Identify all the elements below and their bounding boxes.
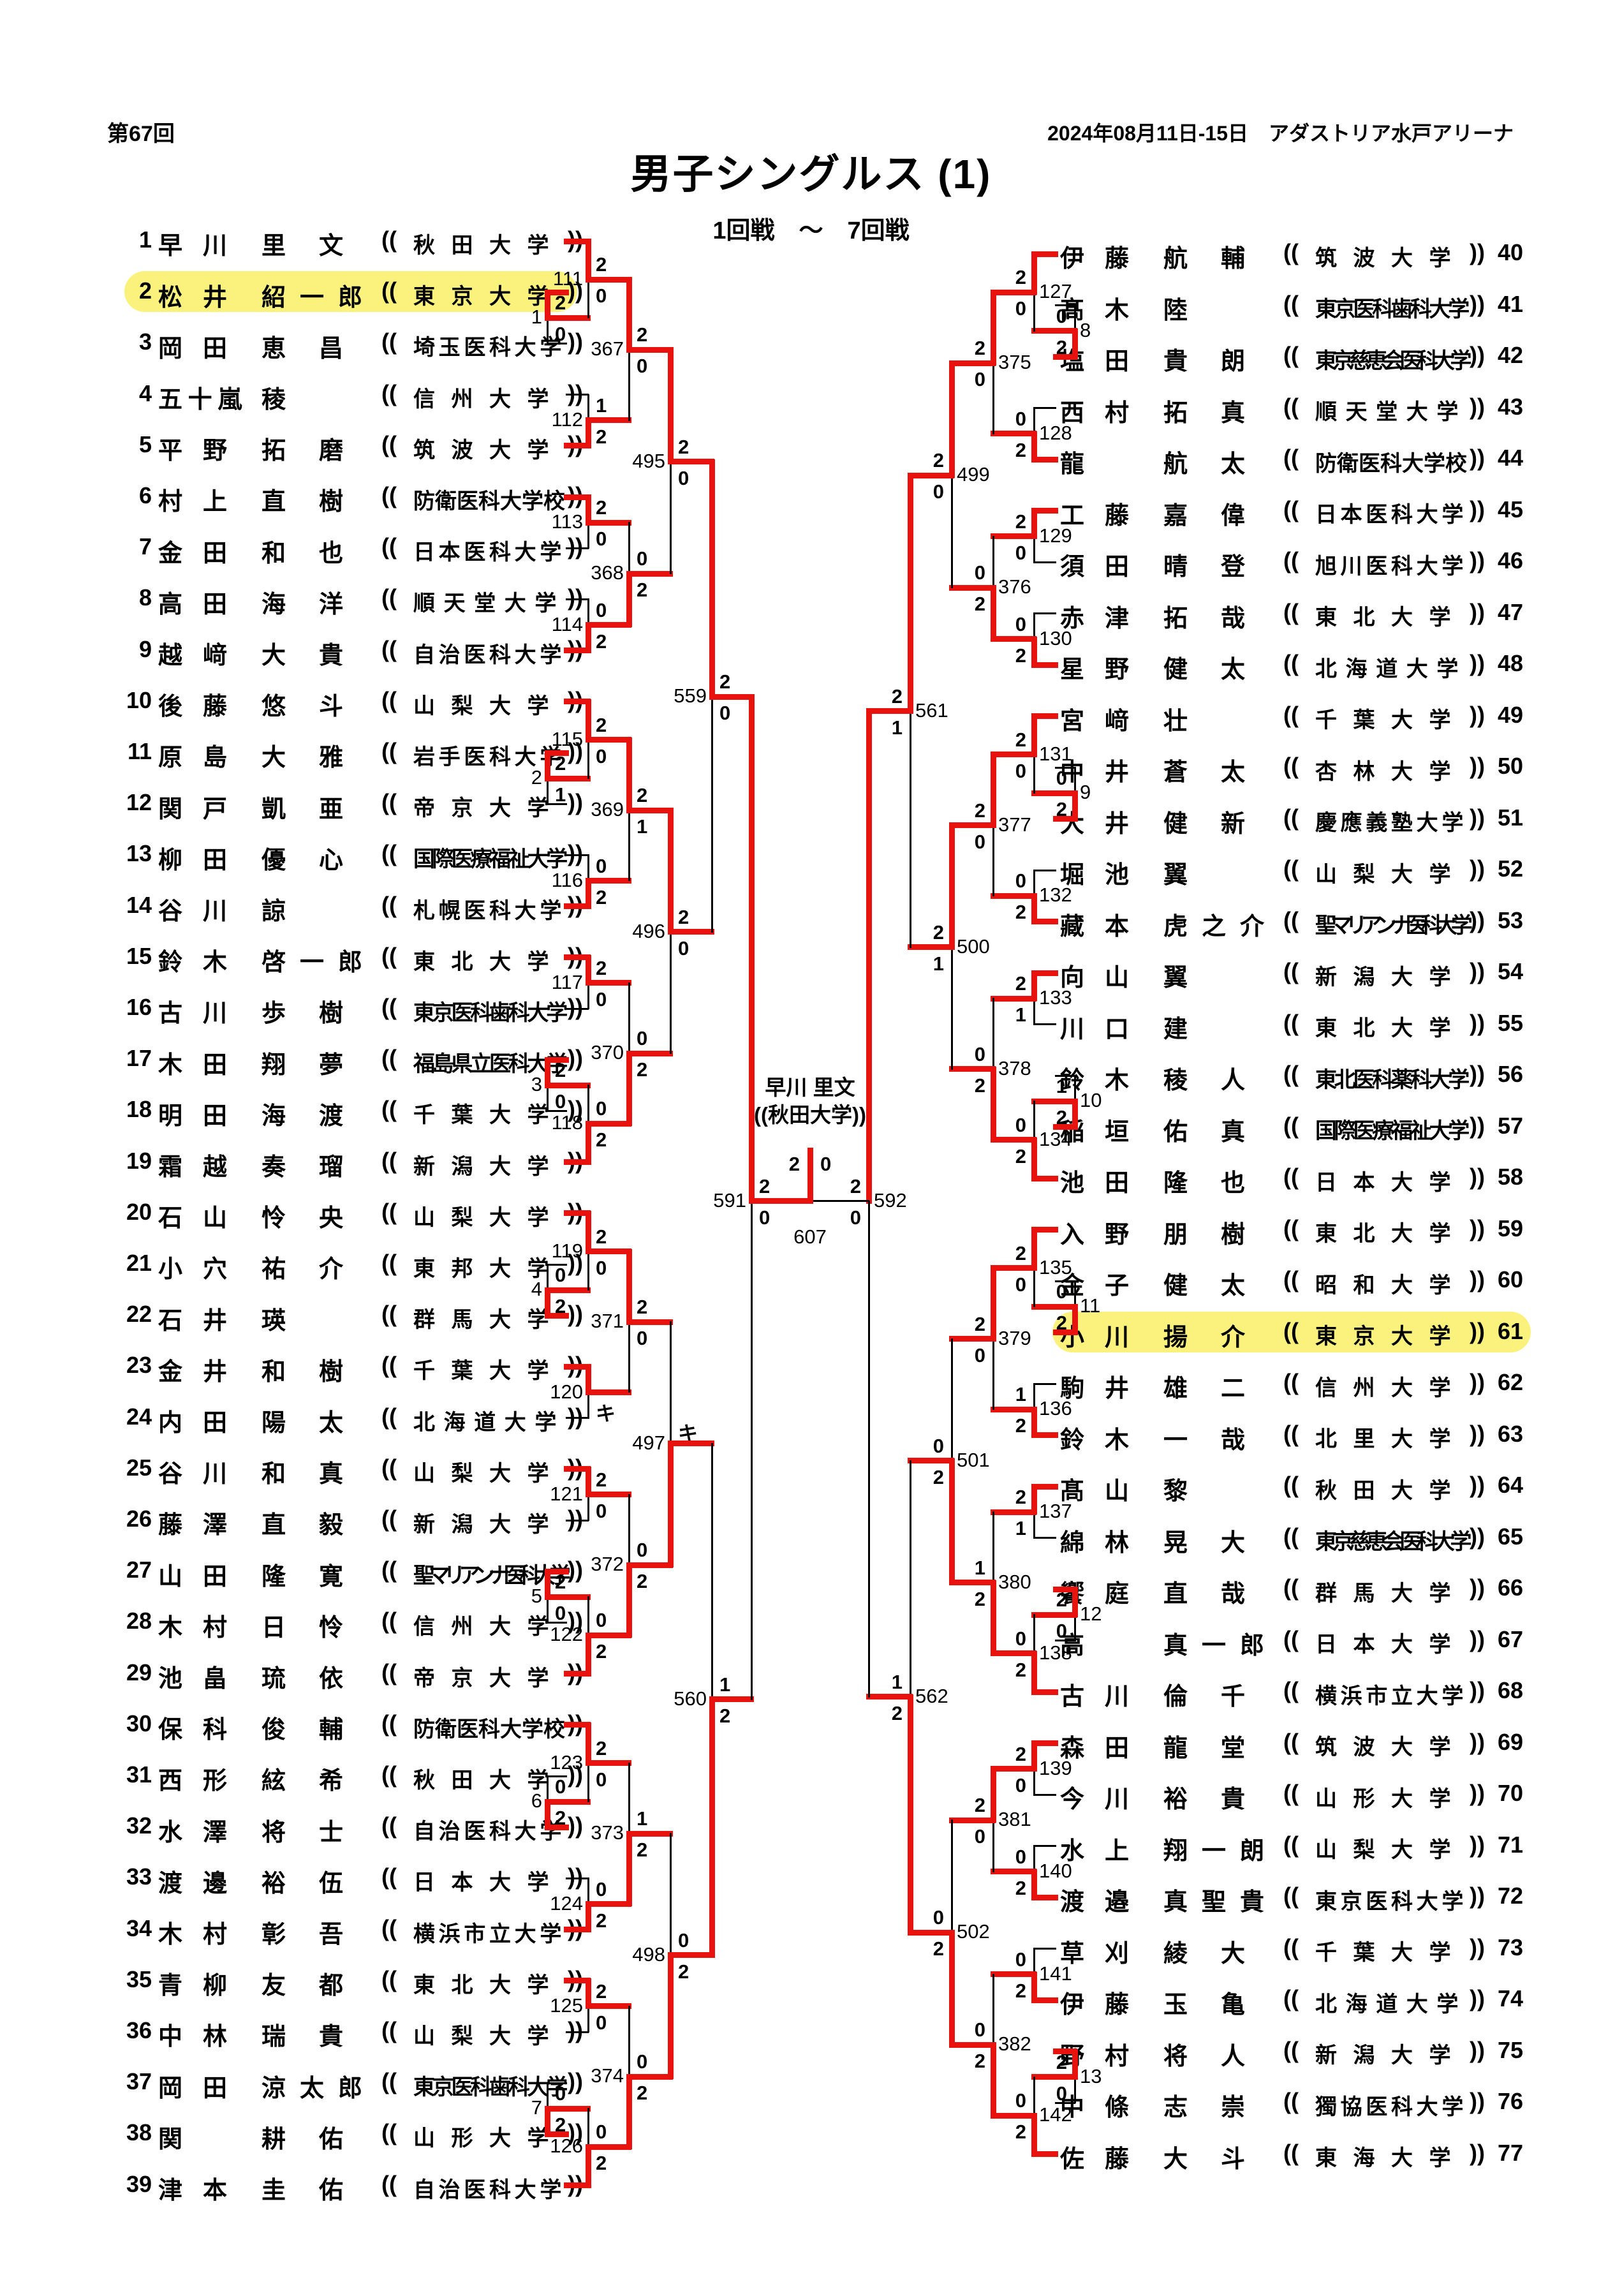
- match-499-number: 499: [957, 463, 990, 486]
- final-match-number: 607: [772, 1226, 848, 1248]
- player-59-paren-close: )): [1470, 1215, 1485, 1242]
- player-31-paren-open: ((: [381, 1761, 397, 1788]
- match-130-in-top: [1033, 612, 1056, 614]
- player-9-given: 大貴: [262, 635, 376, 670]
- match-380-vertical-top: [992, 1511, 994, 1583]
- player-17-seed: 17: [96, 1045, 152, 1072]
- match-495-score-bottom: 0: [678, 467, 689, 490]
- match-499-score-top: 2: [933, 449, 944, 472]
- match-127-in-bottom: [1031, 328, 1077, 334]
- player-38-univ: 山形大学: [413, 2121, 565, 2152]
- match-115-vertical-bottom: [587, 739, 589, 779]
- match-13-number: 13: [1080, 2065, 1102, 2088]
- player-21-family: 小穴: [158, 1249, 247, 1284]
- player-62-family: 駒井: [1060, 1368, 1149, 1404]
- match-502-in-bottom: [949, 2042, 996, 2048]
- player-6-paren-open: ((: [381, 482, 397, 509]
- player-31-given: 絃希: [262, 1761, 376, 1796]
- player-40-given: 航輔: [1163, 239, 1278, 274]
- match-379-number: 379: [998, 1327, 1031, 1350]
- player-61-given: 揚介: [1163, 1317, 1278, 1352]
- player-21-univ: 東邦大学: [413, 1251, 565, 1282]
- match-127-vertical-bottom: [1033, 292, 1035, 331]
- match-502-in-top: [949, 1818, 996, 1823]
- match-4-number: 4: [531, 1278, 542, 1301]
- player-12-paren-close: )): [568, 789, 583, 816]
- player-5-paren-open: ((: [381, 431, 397, 458]
- player-32-paren-close: )): [568, 1812, 583, 1839]
- match-501-vertical-top: [951, 1338, 953, 1462]
- match-137-score-top: 2: [1015, 1486, 1026, 1509]
- match-372-in-top: [586, 1492, 631, 1497]
- player-50-paren-open: ((: [1283, 753, 1299, 780]
- player-32-paren-open: ((: [381, 1812, 397, 1839]
- player-10-given: 悠斗: [262, 686, 376, 722]
- match-496-in-bottom: [626, 1051, 673, 1056]
- match-374-in-bottom: [586, 2144, 631, 2150]
- match-139-number: 139: [1039, 1757, 1072, 1780]
- player-49-family: 宮﨑: [1060, 701, 1149, 736]
- player-23-paren-open: ((: [381, 1352, 397, 1379]
- player-11-univ: 岩手医科大学: [413, 739, 565, 771]
- player-53-seed: 53: [1498, 907, 1549, 934]
- match-114-score-top: 0: [596, 599, 607, 622]
- match-368-in-bottom: [586, 622, 631, 628]
- match-501-vertical-bottom: [949, 1458, 955, 1585]
- player-29-family: 池畠: [158, 1659, 247, 1694]
- match-124-score-bottom: 2: [596, 1909, 607, 1932]
- match-120-in-bottom: [566, 1417, 589, 1419]
- match-119-in-bottom: [545, 1287, 591, 1293]
- player-20-family: 石山: [158, 1198, 247, 1233]
- player-73-paren-open: ((: [1283, 1934, 1299, 1961]
- player-64-paren-open: ((: [1283, 1472, 1299, 1499]
- match-499-vertical-bottom: [951, 475, 953, 588]
- player-76-paren-close: )): [1470, 2088, 1485, 2115]
- player-45-given: 嘉偉: [1163, 496, 1278, 531]
- match-132-score-bottom: 2: [1015, 901, 1026, 924]
- match-371-score-top: 2: [637, 1296, 647, 1319]
- match-3-vertical-bottom: [547, 1085, 549, 1111]
- match-374-number: 374: [591, 2064, 624, 2087]
- match-126-vertical-top: [587, 2108, 589, 2147]
- match-495-in-top: [626, 347, 673, 353]
- player-52-seed: 52: [1498, 855, 1549, 882]
- player-3-paren-close: )): [568, 329, 583, 355]
- player-51-given: 健新: [1163, 804, 1278, 839]
- player-5-univ: 筑波大学: [413, 433, 565, 464]
- player-60-given: 健太: [1163, 1266, 1278, 1301]
- match-373-in-bottom: [586, 1901, 631, 1907]
- match-2-number: 2: [531, 766, 542, 789]
- match-132-number: 132: [1039, 884, 1072, 907]
- match-116-in-top: [566, 854, 589, 856]
- player-16-given: 歩樹: [262, 993, 376, 1028]
- player-26-paren-open: ((: [381, 1506, 397, 1532]
- match-140-number: 140: [1039, 1860, 1072, 1883]
- player-58-paren-close: )): [1470, 1164, 1485, 1190]
- player-54-given: 翼: [1163, 958, 1278, 993]
- player-76-given: 志崇: [1163, 2087, 1278, 2122]
- match-130-score-bottom: 2: [1015, 644, 1026, 667]
- match-498-vertical-top: [670, 1833, 672, 1955]
- match-138-score-top: 0: [1015, 1627, 1026, 1650]
- match-375-number: 375: [998, 351, 1031, 374]
- match-498-score-bottom: 2: [678, 1960, 689, 1983]
- player-7-family: 金田: [158, 533, 247, 568]
- player-12-univ: 帝京大学: [413, 790, 565, 822]
- match-5-score-top: 2: [555, 1571, 566, 1594]
- match-126-score-bottom: 2: [596, 2152, 607, 2175]
- match-124-score-top: 0: [596, 1878, 607, 1901]
- match-382-vertical-top: [992, 1974, 994, 2046]
- match-378-in-bottom: [991, 1137, 1036, 1143]
- player-61-seed: 61: [1498, 1318, 1549, 1345]
- player-36-family: 中林: [158, 2017, 247, 2052]
- player-54-paren-close: )): [1470, 958, 1485, 985]
- player-22-family: 石井: [158, 1301, 247, 1336]
- match-378-vertical-top: [992, 998, 994, 1070]
- player-44-seed: 44: [1498, 445, 1549, 471]
- match-136-score-bottom: 2: [1015, 1414, 1026, 1437]
- match-113-vertical-bottom: [587, 522, 589, 549]
- player-48-family: 星野: [1060, 649, 1149, 685]
- player-1-univ: 秋田大学: [413, 228, 565, 259]
- player-68-paren-open: ((: [1283, 1677, 1299, 1704]
- final-score-left: 2: [789, 1153, 800, 1176]
- match-375-vertical-bottom: [992, 362, 994, 434]
- player-29-paren-open: ((: [381, 1659, 397, 1686]
- match-368-score-bottom: 2: [637, 579, 647, 602]
- match-126-vertical-bottom: [586, 2144, 591, 2188]
- match-117-in-bottom: [566, 1008, 589, 1010]
- player-64-family: 髙山: [1060, 1471, 1149, 1506]
- player-15-paren-open: ((: [381, 943, 397, 970]
- match-562-in-top: [908, 1458, 954, 1463]
- match-123-in-bottom: [545, 1799, 591, 1805]
- player-50-univ: 杏林大学: [1315, 754, 1467, 785]
- player-13-family: 柳田: [158, 840, 247, 875]
- match-119-number: 119: [552, 1240, 583, 1263]
- player-68-seed: 68: [1498, 1677, 1549, 1704]
- player-56-univ: 東北医科薬科大学: [1315, 1062, 1467, 1093]
- match-560-vertical-top: [711, 1443, 713, 1700]
- player-31-univ: 秋田大学: [413, 1763, 565, 1794]
- match-562-score-bottom: 2: [892, 1702, 903, 1725]
- match-114-in-top: [566, 598, 589, 600]
- match-119-vertical-bottom: [587, 1251, 589, 1291]
- player-54-family: 向山: [1060, 958, 1149, 993]
- player-61-paren-close: )): [1470, 1318, 1485, 1345]
- player-3-given: 恵昌: [262, 329, 376, 364]
- player-59-paren-open: ((: [1283, 1215, 1299, 1242]
- match-115-vertical-top: [586, 699, 591, 743]
- match-382-in-top: [991, 1971, 1036, 1977]
- player-36-seed: 36: [96, 2017, 152, 2044]
- match-115-score-bottom: 0: [596, 745, 607, 768]
- match-122-score-top: 0: [596, 1609, 607, 1632]
- match-134-score-bottom: 2: [1015, 1145, 1026, 1168]
- match-498-number: 498: [632, 1943, 665, 1966]
- match-1-score-top: 2: [555, 292, 566, 315]
- match-122-score-bottom: 2: [596, 1640, 607, 1663]
- player-33-paren-open: ((: [381, 1863, 397, 1890]
- match-111-score-top: 2: [596, 253, 607, 276]
- match-5-score-bottom: 0: [555, 1602, 566, 1625]
- match-134-vertical-bottom: [1031, 1137, 1037, 1181]
- match-129-in-bottom: [1033, 561, 1056, 563]
- player-72-given: 真聖貴: [1163, 1882, 1278, 1917]
- match-592-number: 592: [874, 1189, 907, 1212]
- player-52-family: 堀池: [1060, 855, 1149, 890]
- match-4-score-bottom: 2: [555, 1295, 566, 1318]
- player-45-paren-close: )): [1470, 496, 1485, 523]
- player-4-family: 五十嵐: [158, 380, 247, 415]
- player-34-univ: 横浜市立大学: [413, 1916, 565, 1948]
- match-136-number: 136: [1039, 1397, 1072, 1420]
- match-378-number: 378: [998, 1057, 1031, 1080]
- match-128-score-top: 0: [1015, 408, 1026, 431]
- player-38-given: 耕佑: [262, 2119, 376, 2154]
- match-135-number: 135: [1039, 1256, 1072, 1279]
- player-29-univ: 帝京大学: [413, 1661, 565, 1692]
- match-375-score-top: 2: [975, 337, 985, 360]
- match-375-in-bottom: [991, 431, 1036, 436]
- match-371-vertical-bottom: [628, 1321, 630, 1393]
- match-123-vertical-top: [586, 1722, 591, 1766]
- match-560-score-bottom: 2: [719, 1705, 730, 1728]
- player-75-seed: 75: [1498, 2037, 1549, 2064]
- match-374-vertical-bottom: [626, 2074, 632, 2149]
- player-64-univ: 秋田大学: [1315, 1473, 1467, 1504]
- match-372-vertical-bottom: [626, 1562, 632, 1638]
- final-winner-stub: [807, 1148, 813, 1204]
- match-379-vertical-bottom: [992, 1338, 994, 1411]
- match-1-number: 1: [531, 306, 542, 329]
- player-2-given: 紹一郎: [262, 278, 376, 313]
- player-9-seed: 9: [96, 636, 152, 663]
- match-371-in-bottom: [586, 1389, 631, 1395]
- player-67-paren-open: ((: [1283, 1626, 1299, 1653]
- player-66-paren-close: )): [1470, 1574, 1485, 1601]
- player-41-univ: 東京医科歯科大学: [1315, 292, 1467, 323]
- player-70-seed: 70: [1498, 1780, 1549, 1807]
- match-562-score-top: 1: [892, 1671, 903, 1694]
- match-134-in-top: [1031, 1099, 1077, 1104]
- player-62-given: 雄二: [1163, 1368, 1278, 1404]
- player-58-univ: 日本大学: [1315, 1165, 1467, 1196]
- player-73-univ: 千葉大学: [1315, 1935, 1467, 1966]
- player-59-family: 入野: [1060, 1215, 1149, 1250]
- match-118-score-top: 0: [596, 1097, 607, 1120]
- match-367-score-bottom: 0: [637, 355, 647, 378]
- match-131-score-top: 2: [1015, 729, 1026, 752]
- match-2-score-bottom: 1: [555, 783, 566, 806]
- match-116-number: 116: [552, 869, 583, 892]
- player-40-paren-open: ((: [1283, 239, 1299, 266]
- player-64-paren-close: )): [1470, 1472, 1485, 1499]
- player-9-paren-open: ((: [381, 636, 397, 663]
- match-127-number: 127: [1039, 280, 1072, 303]
- match-501-number: 501: [957, 1449, 990, 1472]
- match-120-vertical-bottom: [587, 1392, 589, 1419]
- player-7-given: 和也: [262, 533, 376, 568]
- player-57-univ: 国際医療福祉大学: [1315, 1113, 1467, 1144]
- match-498-vertical-bottom: [668, 1953, 674, 2079]
- player-69-paren-close: )): [1470, 1729, 1485, 1756]
- player-4-univ: 信州大学: [413, 381, 565, 413]
- player-9-univ: 自治医科大学: [413, 637, 565, 669]
- player-55-given: 建: [1163, 1009, 1278, 1044]
- match-499-vertical-top: [949, 360, 955, 478]
- match-12-score-bottom: 0: [1056, 1620, 1067, 1643]
- match-118-vertical-bottom: [586, 1121, 591, 1164]
- match-495-score-top: 2: [678, 436, 689, 459]
- player-25-seed: 25: [96, 1455, 152, 1481]
- match-591-in-top: [709, 694, 754, 700]
- match-497-in-top: [626, 1319, 673, 1325]
- player-27-seed: 27: [96, 1557, 152, 1583]
- player-50-given: 蒼太: [1163, 752, 1278, 787]
- match-13-score-bottom: 0: [1056, 2082, 1067, 2105]
- player-57-seed: 57: [1498, 1113, 1549, 1139]
- player-60-paren-open: ((: [1283, 1266, 1299, 1293]
- match-142-vertical-top: [1033, 2077, 1035, 2116]
- match-500-vertical-top: [949, 823, 955, 950]
- player-75-given: 将人: [1163, 2036, 1278, 2071]
- match-6-score-bottom: 2: [555, 1807, 566, 1830]
- match-121-number: 121: [550, 1483, 583, 1506]
- player-43-univ: 順天堂大学: [1315, 394, 1467, 426]
- player-77-seed: 77: [1498, 2140, 1549, 2166]
- match-117-vertical-bottom: [587, 982, 589, 1009]
- match-6-score-top: 0: [555, 1775, 566, 1798]
- match-111-number: 111: [553, 267, 583, 290]
- player-49-paren-open: ((: [1283, 702, 1299, 729]
- player-10-family: 後藤: [158, 686, 247, 722]
- match-374-in-top: [586, 2003, 631, 2009]
- player-23-family: 金井: [158, 1352, 247, 1387]
- player-42-given: 貴朗: [1163, 341, 1278, 376]
- match-500-score-top: 2: [933, 921, 944, 944]
- match-367-score-top: 2: [637, 323, 647, 346]
- match-7-number: 7: [531, 2096, 542, 2119]
- player-24-family: 内田: [158, 1403, 247, 1438]
- player-45-seed: 45: [1498, 496, 1549, 523]
- player-27-given: 隆寛: [262, 1557, 376, 1592]
- player-12-seed: 12: [96, 789, 152, 816]
- player-6-family: 村上: [158, 482, 247, 517]
- match-373-score-bottom: 2: [637, 1839, 647, 1862]
- player-77-paren-close: )): [1470, 2140, 1485, 2166]
- match-131-in-bottom: [1031, 790, 1077, 796]
- match-111-in-bottom: [545, 315, 591, 321]
- player-42-paren-open: ((: [1283, 342, 1299, 369]
- player-68-paren-close: )): [1470, 1677, 1485, 1704]
- player-63-paren-close: )): [1470, 1421, 1485, 1448]
- match-121-in-bottom: [566, 1520, 589, 1522]
- match-4-score-top: 0: [555, 1264, 566, 1287]
- player-37-univ: 東京医科歯科大学: [413, 2070, 565, 2101]
- match-559-number: 559: [674, 685, 707, 707]
- player-20-paren-open: ((: [381, 1199, 397, 1226]
- player-34-given: 彰吾: [262, 1915, 376, 1950]
- match-120-score-bottom: キ: [596, 1398, 616, 1426]
- player-21-given: 祐介: [262, 1249, 376, 1284]
- match-125-number: 125: [550, 1994, 583, 2017]
- player-9-family: 越﨑: [158, 635, 247, 670]
- match-379-in-top: [991, 1265, 1036, 1271]
- player-6-seed: 6: [96, 482, 152, 509]
- player-52-given: 翼: [1163, 855, 1278, 890]
- player-17-family: 木田: [158, 1045, 247, 1080]
- player-1-family: 早川: [158, 226, 247, 261]
- player-44-paren-close: )): [1470, 445, 1485, 471]
- player-76-seed: 76: [1498, 2088, 1549, 2115]
- match-377-in-bottom: [991, 893, 1036, 899]
- match-12-number: 12: [1080, 1603, 1102, 1626]
- match-7-score-top: 0: [555, 2082, 566, 2105]
- player-24-paren-open: ((: [381, 1404, 397, 1430]
- player-30-family: 保科: [158, 1710, 247, 1745]
- match-379-vertical-top: [991, 1266, 996, 1342]
- match-131-number: 131: [1039, 743, 1072, 766]
- player-60-seed: 60: [1498, 1266, 1549, 1293]
- match-498-in-top: [626, 1831, 673, 1837]
- match-499-in-top: [949, 360, 996, 366]
- player-65-seed: 65: [1498, 1523, 1549, 1550]
- match-377-score-bottom: 0: [975, 831, 985, 854]
- player-3-family: 岡田: [158, 329, 247, 364]
- player-62-paren-open: ((: [1283, 1369, 1299, 1396]
- match-372-vertical-top: [628, 1494, 630, 1566]
- match-139-vertical-bottom: [1033, 1768, 1035, 1795]
- match-138-vertical-bottom: [1031, 1651, 1037, 1694]
- match-126-score-top: 0: [596, 2121, 607, 2144]
- player-70-family: 今川: [1060, 1779, 1149, 1814]
- match-127-score-bottom: 0: [1015, 297, 1026, 320]
- match-562-number: 562: [915, 1685, 948, 1708]
- player-1-paren-open: ((: [381, 226, 397, 253]
- player-35-univ: 東北大学: [413, 1967, 565, 1999]
- player-22-paren-open: ((: [381, 1301, 397, 1328]
- player-48-univ: 北海道大学: [1315, 651, 1467, 683]
- match-113-in-bottom: [566, 547, 589, 549]
- match-500-number: 500: [957, 935, 990, 958]
- match-138-vertical-top: [1033, 1614, 1035, 1654]
- player-30-given: 俊輔: [262, 1710, 376, 1745]
- player-7-paren-open: ((: [381, 533, 397, 560]
- bracket-sheet-page: 第67回 2024年08月11日-15日 アダストリア水戸アリーナ 男子シングル…: [0, 0, 1622, 2296]
- match-502-score-bottom: 2: [933, 1937, 944, 1960]
- match-121-score-top: 2: [596, 1469, 607, 1492]
- player-40-univ: 筑波大学: [1315, 241, 1467, 272]
- player-41-given: 陸: [1163, 290, 1278, 325]
- player-26-family: 藤澤: [158, 1505, 247, 1540]
- player-37-paren-close: )): [568, 2068, 583, 2095]
- player-72-paren-open: ((: [1283, 1883, 1299, 1909]
- match-8-score-top: 0: [1056, 305, 1067, 328]
- player-22-univ: 群馬大学: [413, 1302, 565, 1333]
- match-561-vertical-top: [908, 473, 913, 714]
- match-368-vertical-top: [628, 522, 630, 574]
- player-14-family: 谷川: [158, 891, 247, 926]
- match-561-in-top: [908, 473, 954, 478]
- player-20-seed: 20: [96, 1199, 152, 1226]
- match-142-score-bottom: 2: [1015, 2121, 1026, 2144]
- player-56-given: 稜人: [1163, 1060, 1278, 1095]
- player-3-univ: 埼玉医科大学: [413, 330, 565, 361]
